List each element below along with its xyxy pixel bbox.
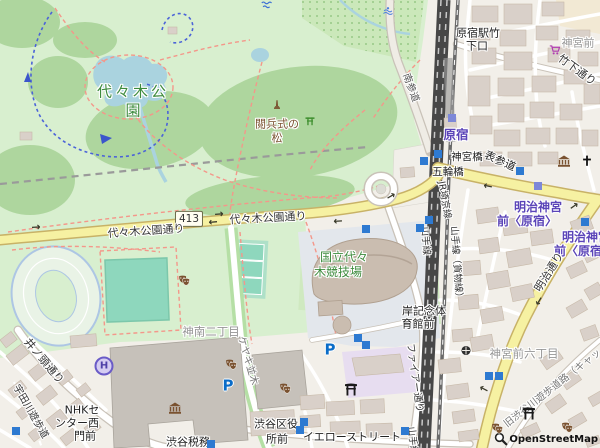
masks-icon [177,274,191,291]
label-meijijingumae-1a: 明治神宮 [514,201,562,213]
museum-icon [557,154,572,172]
subway-icon [516,167,524,175]
shrine-icon [460,344,473,360]
subway-icon [581,218,589,226]
helipad-icon: H [95,357,114,376]
museum-icon [168,401,183,419]
label-old-shibuya-river-path: 旧渋谷川遊歩道路（キャッ [503,348,600,430]
label-kishi-gym-1: 岸記念体 [402,306,446,317]
torii-icon [522,406,537,424]
subway-icon [425,216,433,224]
label-jingumae-6chome: 神宮前六丁目 [490,348,559,360]
label-meijijingumae-2a: 明治神宮 [562,231,600,243]
label-harajuku-takeshita-exit-2: 下口 [466,41,488,52]
subway-icon [207,440,215,448]
label-gorinbashi: 五輪橋 [432,167,464,178]
subway-icon [354,334,362,342]
oneway-arrow: ← [333,215,343,227]
subway-icon [448,114,456,122]
subway-icon [534,182,542,190]
subway-icon [485,372,493,380]
torii-icon [344,382,359,400]
oneway-arrow: ← [208,216,218,228]
label-minami-sando: 南参道 [400,72,420,104]
label-yoyogi-park-line1: 代々木公 [97,85,169,100]
label-omotesando: 表参道 [483,149,518,172]
parking-icon: P [223,379,234,394]
label-harajuku-station: 原宿 [443,129,468,142]
label-yoyogi-koen-dori: 代々木公園通り [229,210,306,225]
label-eppeishiki-pine-line2: 松 [272,133,283,144]
map-overlay: 413 OpenStreetMap 代々木公園閲兵式の松代々木公園通り代々木公園… [0,0,600,448]
label-inokashira-dori: 井ノ頭通り [22,336,66,385]
label-shibuya-tax-office: 渋谷税務 [166,437,210,448]
subway-icon [434,150,442,158]
parking-icon: P [325,343,336,358]
subway-icon [362,341,370,349]
oneway-arrow: ← [532,294,546,308]
map-canvas[interactable]: 413 OpenStreetMap 代々木公園閲兵式の松代々木公園通り代々木公園… [0,0,600,448]
subway-icon [416,224,424,232]
label-keyaki-namiki: ケヤキ並木 [235,336,258,387]
label-jr-saikyo-line: JR埼京線 [436,181,452,220]
cross-icon [581,154,593,170]
label-eppeishiki-pine-line1: 閲兵式の [255,119,299,130]
subway-icon [300,418,308,426]
label-jinnan-2chome: 神南二丁目 [182,326,240,338]
subway-icon [420,157,428,165]
label-harajuku-takeshita-exit-1: 原宿駅竹 [456,28,500,39]
label-nhk-center-2: ンター西 [55,418,99,429]
masks-icon [490,422,504,439]
oneway-arrow: → [384,189,397,203]
masks-icon [224,358,238,375]
label-yoyogi-stadium-2: 木競技場 [314,266,362,278]
subway-icon [401,427,409,435]
oneway-arrow: ← [482,180,493,193]
label-yellow-street: イエローストリート [303,432,401,443]
oneway-arrow: → [31,221,41,233]
label-kishi-gym-2: 育館前 [402,319,435,330]
masks-icon [560,421,574,438]
label-meiji-dori: 明治通り [533,250,566,293]
oneway-arrow: → [567,199,581,213]
label-nhk-center-1: NHKセ [65,405,100,416]
fountain-icon [382,5,395,21]
masks-icon [278,382,292,399]
label-shibuya-ward-office-2: 所前 [266,434,288,445]
label-yoyogi-stadium-1: 国立代々 [320,251,368,263]
label-meijijingumae-1b: 前〈原宿〉 [497,215,557,227]
cart-icon [549,44,562,60]
label-nhk-center-3: 門前 [74,431,96,442]
label-yamanote-freight-line: 山手線（貨物線） [449,226,464,302]
subway-icon [296,426,304,434]
label-jingumae: 神宮前 [562,38,595,49]
label-takeshita-street: 竹下通り [556,53,598,88]
label-jingubashi: 神宮橋 [451,152,483,163]
picnic-icon [304,114,316,130]
label-shibuya-ward-office-1: 渋谷区役 [254,419,298,430]
attribution-text: OpenStreetMap [509,434,598,445]
wave-icon [261,0,274,15]
subway-icon [362,225,370,233]
monument-icon [271,98,283,114]
attribution[interactable]: OpenStreetMap [494,432,598,446]
oneway-arrow: ← [477,382,490,396]
label-yoyogi-koen-dori-west: 代々木公園通り [107,223,185,239]
label-fire-street: ファイアー通り [404,343,424,413]
subway-icon [12,427,20,435]
label-yoyogi-park-line2: 園 [125,104,140,119]
subway-icon [495,372,503,380]
